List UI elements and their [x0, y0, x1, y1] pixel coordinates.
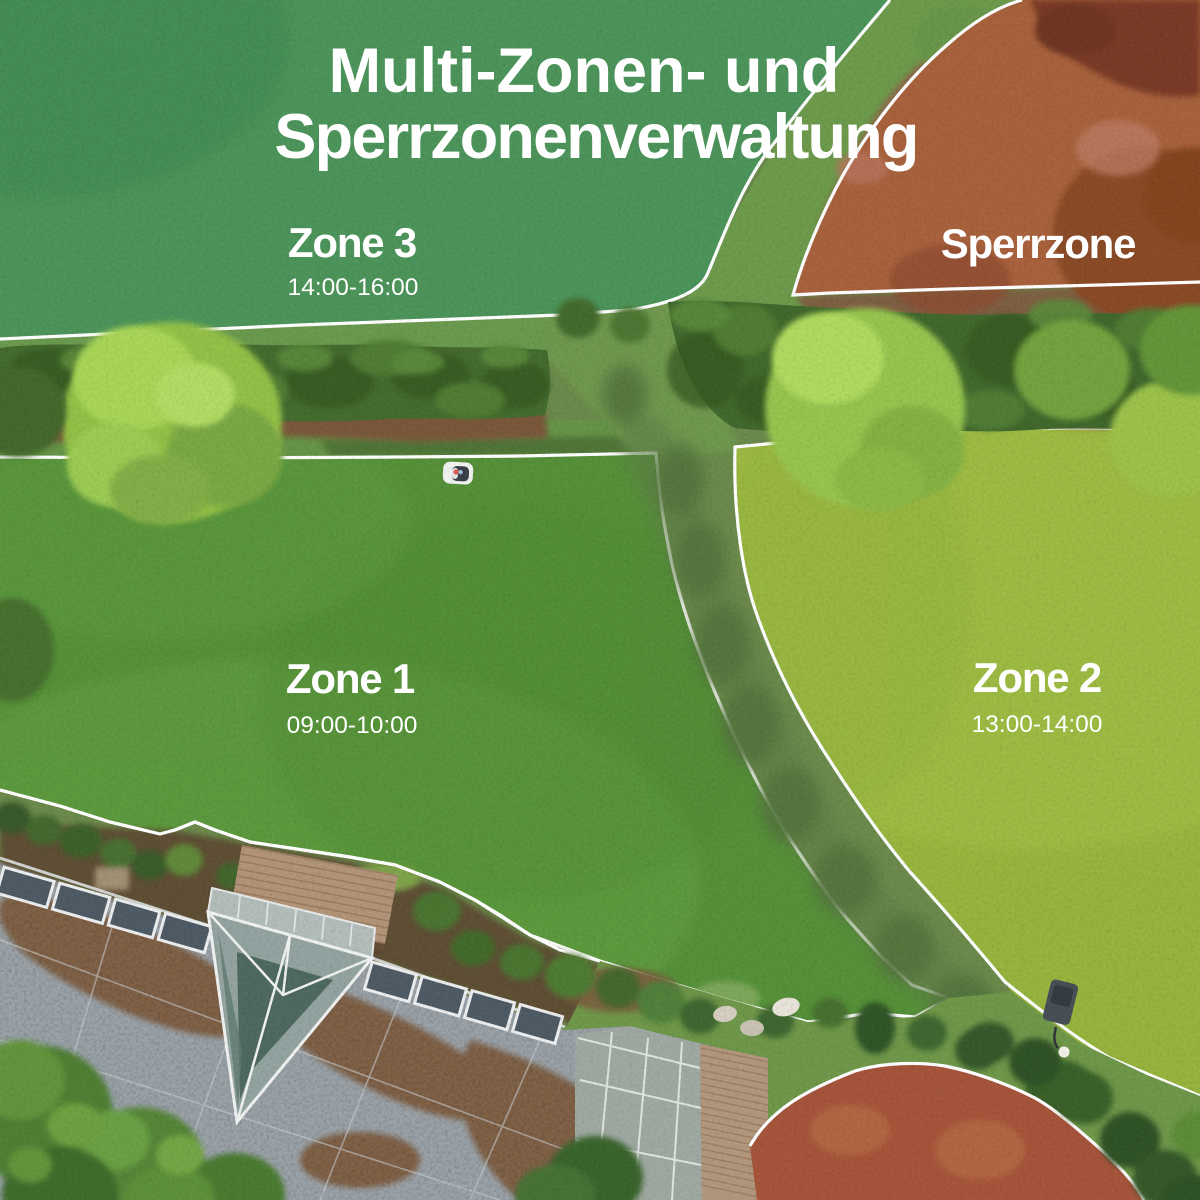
- svg-text:Zone 2: Zone 2: [973, 654, 1101, 701]
- svg-text:14:00-16:00: 14:00-16:00: [288, 274, 419, 301]
- svg-text:Zone 1: Zone 1: [286, 655, 415, 702]
- svg-text:13:00-14:00: 13:00-14:00: [972, 711, 1103, 738]
- svg-text:Multi-Zonen- und: Multi-Zonen- und: [329, 36, 840, 106]
- svg-text:Sperrzone: Sperrzone: [941, 220, 1136, 267]
- svg-text:09:00-10:00: 09:00-10:00: [287, 712, 418, 739]
- svg-text:Sperrzonenverwaltung: Sperrzonenverwaltung: [274, 102, 917, 172]
- svg-text:Zone 3: Zone 3: [288, 219, 416, 266]
